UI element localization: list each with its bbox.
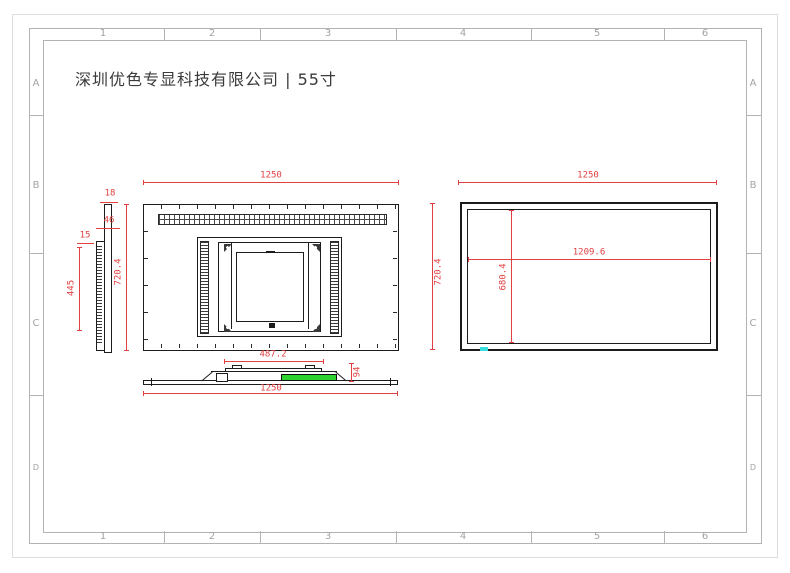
grid-col-label-bottom-5: 5 — [594, 532, 600, 542]
col-tick — [164, 531, 165, 543]
rear-screw-ticks-bottom — [144, 344, 396, 348]
grid-col-label-top-1: 1 — [100, 29, 106, 39]
dim-label-active-height: 680.4 — [500, 263, 509, 290]
row-tick — [29, 395, 43, 396]
rear-screw-ticks-right — [393, 205, 397, 348]
col-tick — [664, 28, 665, 40]
grid-col-label-top-6: 6 — [702, 29, 708, 39]
dim-line-side-15 — [77, 243, 94, 244]
dim-line-active-width — [468, 259, 711, 260]
bottom-connector-strip — [281, 374, 337, 381]
dim-label-vesa-width: 487.2 — [259, 351, 286, 360]
col-tick — [396, 28, 397, 40]
grid-row-label-right-D: D — [750, 463, 756, 473]
col-tick — [260, 531, 261, 543]
col-tick — [396, 531, 397, 543]
col-tick — [531, 531, 532, 543]
vesa-plate-rail-left — [231, 243, 232, 329]
dim-line-front-width — [458, 182, 717, 183]
dim-label-active-width: 1209.6 — [573, 249, 606, 258]
frame-band-left — [29, 28, 30, 544]
col-tick — [531, 28, 532, 40]
rear-mount-vent-left — [200, 241, 209, 334]
bottom-left-box — [216, 373, 228, 382]
dim-label-side-height: 720.4 — [115, 258, 124, 285]
col-tick — [664, 531, 665, 543]
grid-row-label-left-C: C — [33, 319, 40, 329]
dim-label-side-18: 18 — [105, 190, 116, 199]
dim-label-side-15: 15 — [80, 232, 91, 241]
row-tick — [746, 253, 761, 254]
col-tick — [260, 28, 261, 40]
grid-col-label-top-5: 5 — [594, 29, 600, 39]
dim-label-front-width: 1250 — [577, 172, 599, 181]
cad-drawing-sheet: 1 2 3 4 5 6 1 2 3 4 5 6 A B C D A B C D … — [0, 0, 790, 573]
grid-col-label-bottom-4: 4 — [460, 532, 466, 542]
bottom-end-tick-right — [390, 378, 391, 386]
col-tick — [164, 28, 165, 40]
dim-line-vesa-width — [224, 361, 324, 362]
grid-col-label-top-4: 4 — [460, 29, 466, 39]
row-tick — [746, 395, 761, 396]
grid-row-label-left-B: B — [33, 181, 40, 191]
rear-screw-ticks-left — [144, 205, 148, 348]
dim-line-side-height — [126, 204, 127, 351]
bottom-tab-left — [232, 365, 242, 369]
side-view-vent-hatch — [97, 246, 102, 344]
grid-row-label-right-A: A — [750, 79, 757, 89]
rear-mount-vent-right — [330, 241, 339, 334]
grid-col-label-bottom-6: 6 — [702, 532, 708, 542]
grid-col-label-bottom-1: 1 — [100, 532, 106, 542]
page-title: 深圳优色专显科技有限公司 | 55寸 — [75, 66, 337, 90]
dim-line-active-height — [511, 210, 512, 343]
grid-row-label-right-C: C — [750, 319, 757, 329]
vesa-plate-rail-right — [308, 243, 309, 329]
dim-label-bottom-depth: 94 — [354, 367, 363, 378]
grid-col-label-top-2: 2 — [209, 29, 215, 39]
row-tick — [746, 115, 761, 116]
dim-label-bottom-width: 1250 — [260, 385, 282, 394]
rear-bottom-center-mark — [269, 323, 275, 328]
touch-sensor-mark — [480, 347, 488, 351]
rear-top-vent-strip — [158, 214, 387, 225]
dim-line-side-445 — [79, 247, 80, 331]
dim-line-side-18 — [100, 202, 118, 203]
side-view-panel — [104, 204, 112, 353]
bottom-tab-right — [305, 365, 315, 369]
dim-line-side-46 — [96, 228, 120, 229]
grid-col-label-bottom-2: 2 — [209, 532, 215, 542]
grid-row-label-left-D: D — [33, 463, 39, 473]
vesa-opening — [236, 252, 304, 322]
dim-label-side-46: 46 — [104, 217, 115, 226]
bottom-end-tick-left — [151, 378, 152, 386]
row-tick — [29, 115, 43, 116]
dim-label-front-height: 720.4 — [435, 258, 444, 285]
grid-col-label-bottom-3: 3 — [325, 532, 331, 542]
frame-band-right — [761, 28, 762, 544]
row-tick — [29, 253, 43, 254]
rear-screw-ticks-top — [144, 205, 396, 209]
grid-col-label-top-3: 3 — [325, 29, 331, 39]
dim-label-side-445: 445 — [68, 280, 77, 296]
grid-row-label-right-B: B — [750, 181, 757, 191]
dim-line-rear-width — [143, 182, 399, 183]
frame-band-bottom — [29, 543, 762, 544]
dim-label-rear-width: 1250 — [260, 172, 282, 181]
grid-row-label-left-A: A — [33, 79, 40, 89]
rear-top-center-mark — [266, 251, 275, 253]
